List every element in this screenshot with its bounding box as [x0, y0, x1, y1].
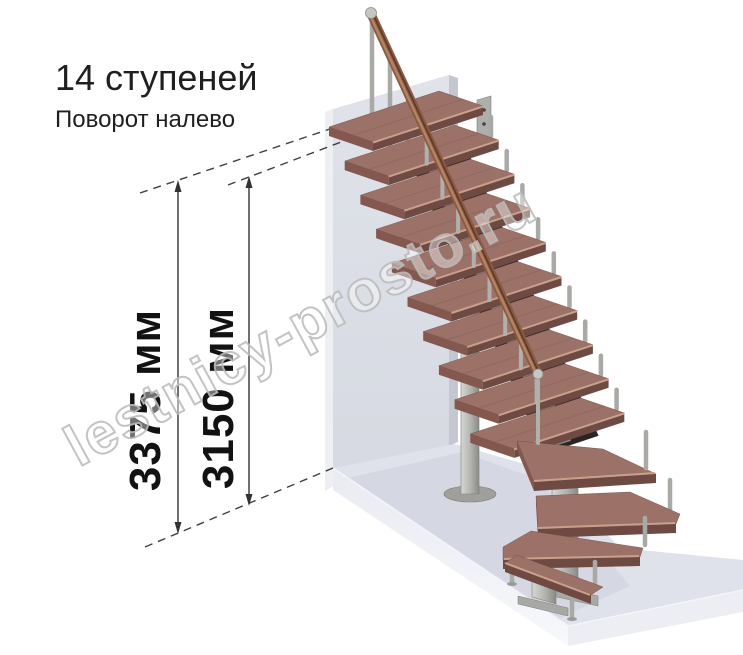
- arrow-up-icon: [175, 180, 182, 192]
- winder-tread: [536, 492, 680, 538]
- scene-svg: 3375 мм 3150 мм 14 ступеней Поворот нале…: [0, 0, 743, 655]
- handrail-cap-icon: [366, 8, 377, 19]
- arrow-down-icon: [246, 494, 253, 506]
- page-subtitle: Поворот налево: [55, 106, 235, 133]
- staircase-diagram-page: 3375 мм 3150 мм 14 ступеней Поворот нале…: [0, 0, 743, 655]
- winder-tread: [517, 441, 656, 491]
- leg-foot-icon: [567, 617, 577, 621]
- page-title: 14 ступеней: [55, 57, 257, 98]
- bolt-hole-icon: [482, 122, 486, 126]
- leg-foot-icon: [507, 582, 517, 586]
- arrow-down-icon: [175, 522, 182, 534]
- handrail-end-ball-icon: [533, 369, 543, 379]
